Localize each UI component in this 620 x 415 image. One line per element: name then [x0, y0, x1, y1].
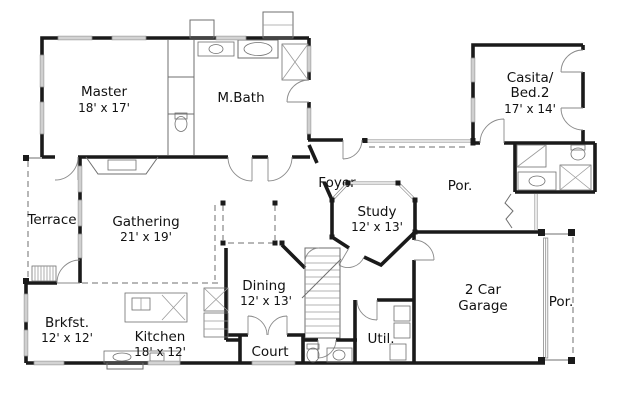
label-breakfast-name: Brkfst.: [45, 315, 89, 331]
floor-plan: Master 18' x 17' M.Bath Foyer: [0, 0, 620, 415]
sink-icon: [209, 45, 223, 54]
dining: Dining 12' x 13': [226, 248, 292, 340]
label-study-name: Study: [358, 204, 397, 220]
terrace: Terrace: [23, 155, 80, 284]
label-casita-2: Bed.2: [510, 85, 549, 101]
gathering: Gathering 21' x 19': [112, 214, 179, 244]
label-garage-1: 2 Car: [465, 282, 502, 298]
label-dining-dims: 12' x 13': [240, 294, 292, 308]
label-master-dims: 18' x 17': [78, 101, 130, 115]
hall-colonnade: [82, 201, 305, 284]
casita-door-arc-2: [561, 108, 583, 130]
cooktop-icon: [113, 353, 131, 361]
label-court: Court: [251, 344, 288, 360]
master-suite: Master 18' x 17': [55, 40, 194, 180]
casita-bath: [515, 143, 595, 192]
stairs: [302, 248, 341, 338]
sink-icon: [529, 176, 545, 186]
label-casita-dims: 17' x 14': [504, 102, 556, 116]
court-entry-opening: [252, 361, 295, 365]
label-porch-center: Por.: [448, 178, 473, 194]
terrace-door-arc: [57, 260, 80, 283]
court: Court: [226, 316, 305, 365]
casita-door-arc: [561, 50, 583, 72]
label-gathering-dims: 21' x 19': [120, 230, 172, 244]
washer-icon: [394, 306, 410, 321]
util-door-arc: [357, 300, 377, 320]
island-icon: [125, 293, 187, 322]
court-door-arc-right: [268, 316, 287, 335]
floor-plan-canvas: Master 18' x 17' M.Bath Foyer: [0, 0, 620, 415]
garage-overhead-door: [544, 238, 548, 358]
label-breakfast-dims: 12' x 12': [41, 331, 93, 345]
label-porch-right: Por.: [549, 294, 574, 310]
label-kitchen-name: Kitchen: [135, 329, 186, 345]
label-terrace: Terrace: [26, 212, 76, 228]
casita: Casita/ Bed.2 17' x 14': [471, 45, 584, 146]
porch-right: Por.: [538, 229, 575, 364]
foyer: Foyer: [309, 140, 362, 200]
master-bath: M.Bath: [175, 40, 309, 181]
utility: Util.: [355, 300, 414, 363]
label-gathering-name: Gathering: [112, 214, 179, 230]
garage-door-arc: [414, 240, 434, 260]
powder-room: [303, 340, 357, 362]
label-kitchen-dims: 18' x 12': [134, 345, 186, 359]
study-door-arc: [339, 248, 364, 267]
sink-icon: [333, 350, 345, 360]
court-door-arc-left: [248, 316, 267, 335]
master-door-arc: [55, 157, 78, 180]
casita-south-door-arc: [480, 119, 504, 143]
study: Study 12' x 13': [330, 181, 418, 268]
label-mbath: M.Bath: [217, 90, 264, 106]
label-master-name: Master: [81, 84, 128, 100]
label-dining-name: Dining: [242, 278, 286, 294]
mbath-door-arc: [287, 80, 309, 102]
garage: 2 Car Garage: [414, 232, 545, 363]
entry-door-arc: [343, 140, 362, 159]
toilet-icon: [307, 348, 319, 362]
kitchen: Kitchen 18' x 12': [104, 288, 228, 369]
label-utility: Util.: [368, 331, 395, 347]
label-casita-1: Casita/: [507, 70, 554, 86]
breakfast: Brkfst. 12' x 12': [41, 315, 93, 345]
label-garage-2: Garage: [458, 298, 507, 314]
label-study-dims: 12' x 13': [351, 220, 403, 234]
dryer-icon: [394, 323, 410, 338]
